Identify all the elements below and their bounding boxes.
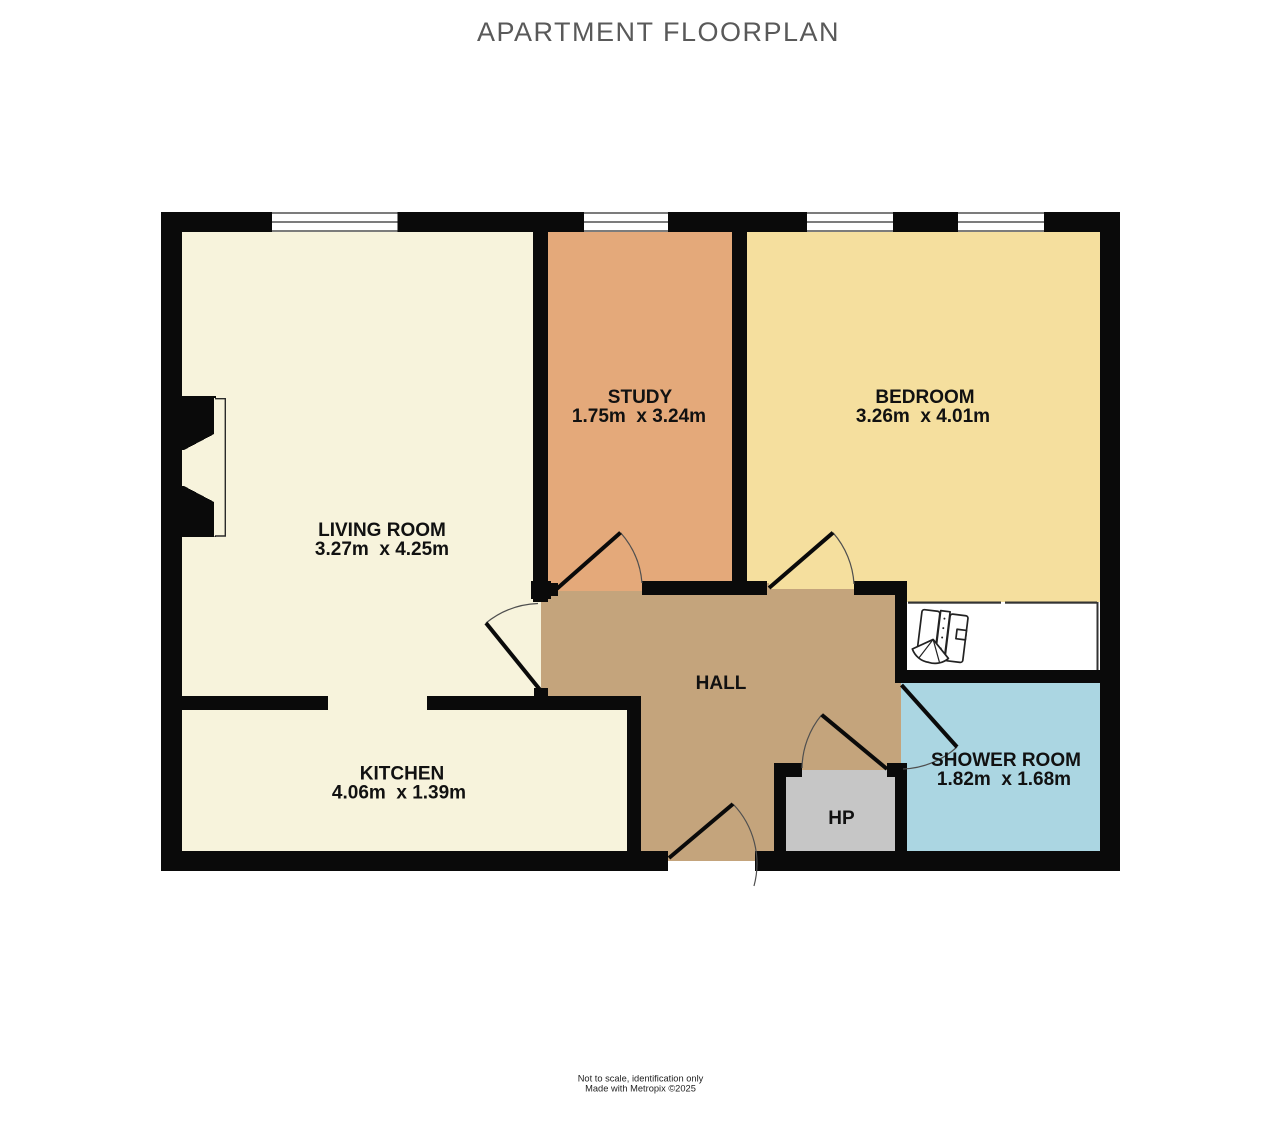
svg-text:HALL: HALL (696, 673, 747, 694)
svg-text:Made with Metropix ©2025: Made with Metropix ©2025 (585, 1083, 696, 1093)
svg-text:3.27m x 4.25m: 3.27m x 4.25m (315, 539, 449, 560)
svg-text:Not to scale, identification o: Not to scale, identification only (578, 1073, 704, 1083)
svg-text:SHOWER ROOM: SHOWER ROOM (931, 750, 1081, 771)
svg-text:KITCHEN: KITCHEN (360, 764, 444, 785)
svg-text:4.06m x 1.39m: 4.06m x 1.39m (332, 783, 466, 804)
svg-text:3.26m x 4.01m: 3.26m x 4.01m (856, 406, 990, 427)
svg-text:LIVING ROOM: LIVING ROOM (318, 520, 446, 541)
svg-text:1.75m x 3.24m: 1.75m x 3.24m (572, 406, 706, 427)
svg-text:STUDY: STUDY (608, 387, 673, 408)
svg-text:1.82m x 1.68m: 1.82m x 1.68m (937, 769, 1071, 790)
svg-text:HP: HP (828, 808, 855, 829)
svg-text:APARTMENT FLOORPLAN: APARTMENT FLOORPLAN (477, 17, 840, 47)
